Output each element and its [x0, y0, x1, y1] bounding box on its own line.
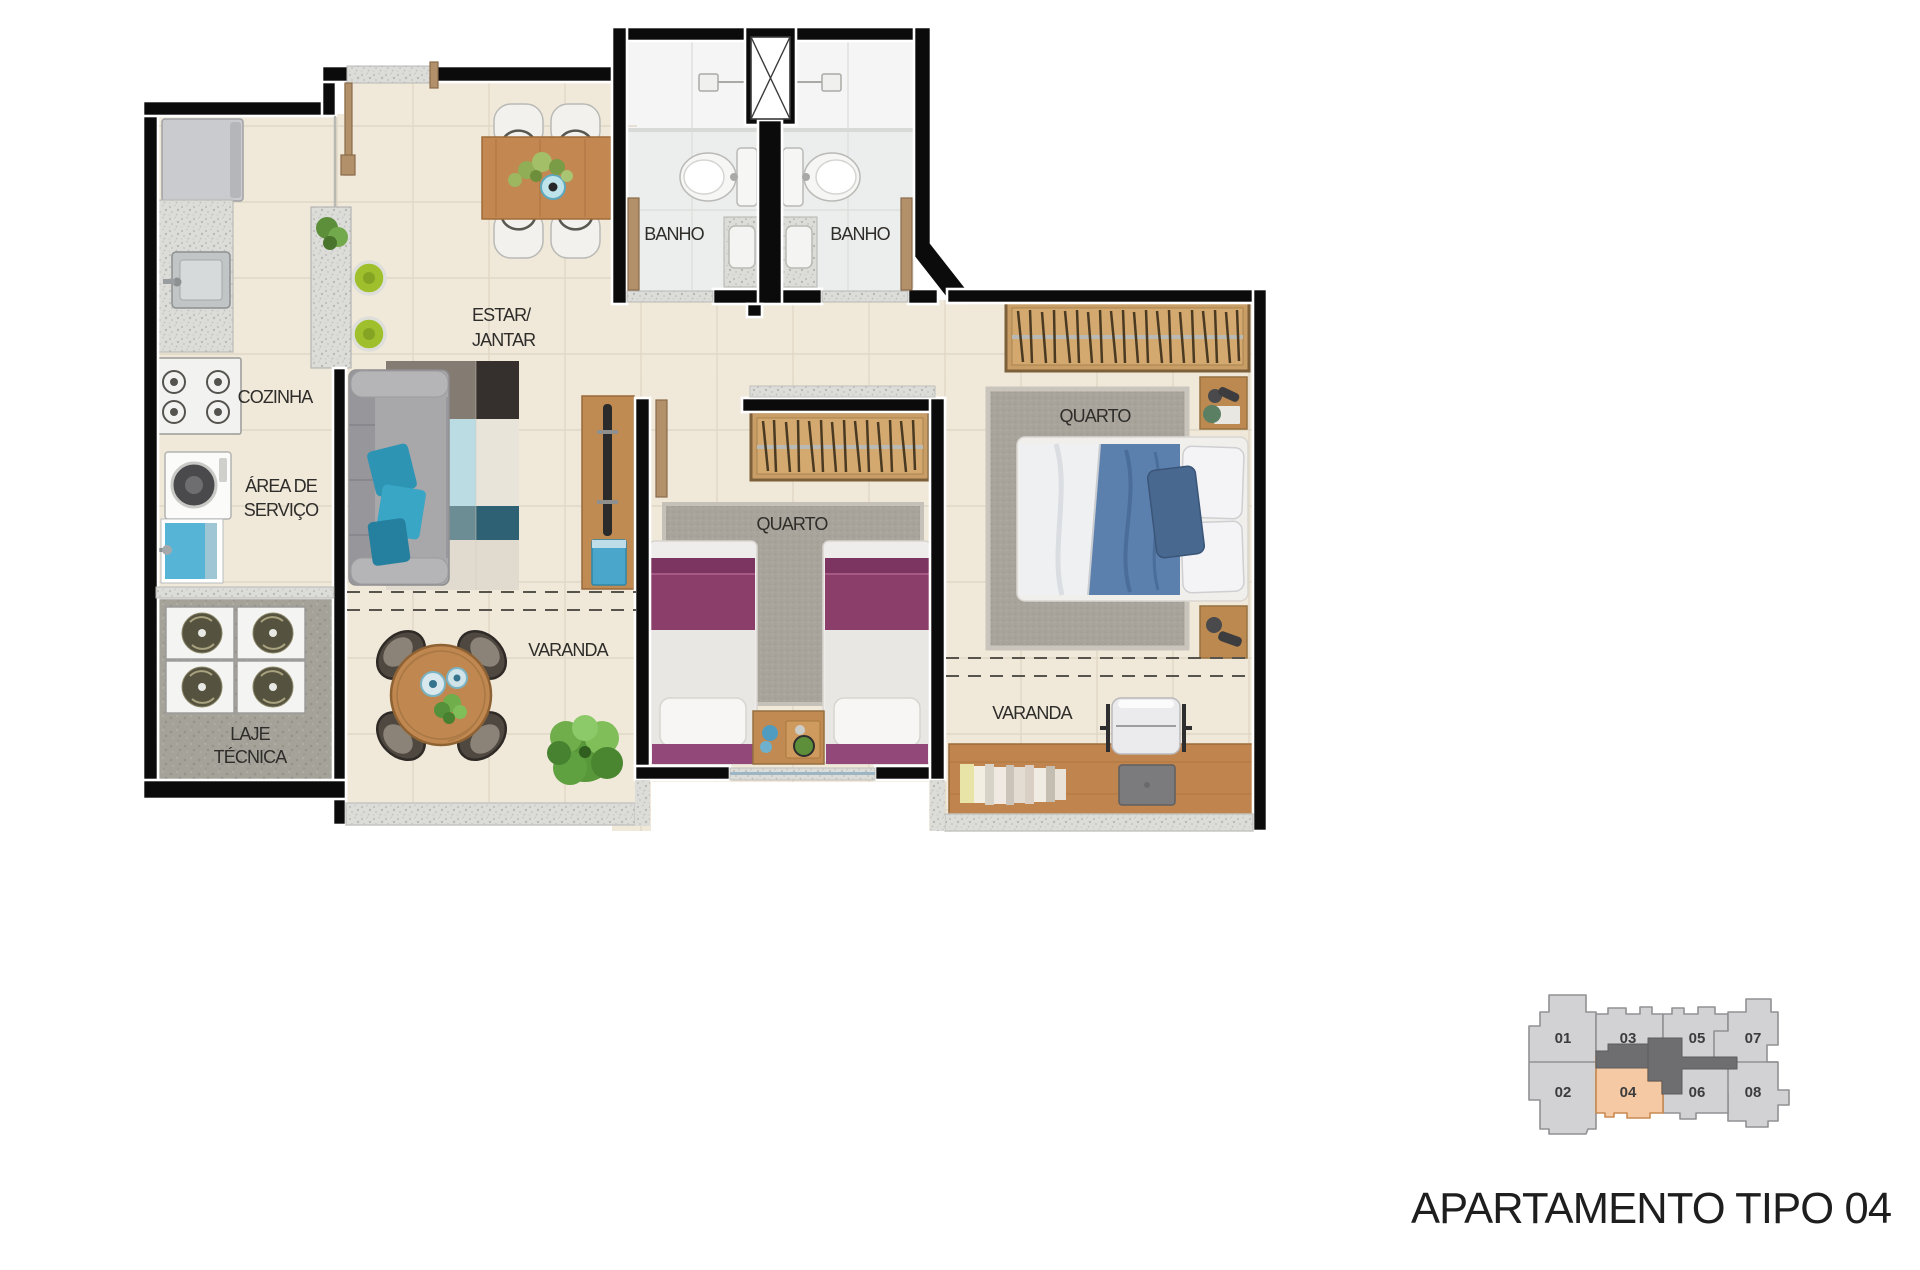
- svg-text:VARANDA: VARANDA: [528, 640, 608, 660]
- svg-text:JANTAR: JANTAR: [472, 330, 536, 350]
- svg-text:05: 05: [1689, 1030, 1706, 1047]
- svg-text:APARTAMENTO TIPO 04: APARTAMENTO TIPO 04: [1411, 1185, 1891, 1233]
- svg-text:ÁREA DE: ÁREA DE: [245, 476, 318, 496]
- svg-text:04: 04: [1620, 1084, 1637, 1101]
- svg-text:VARANDA: VARANDA: [992, 703, 1072, 723]
- svg-text:08: 08: [1745, 1084, 1762, 1101]
- svg-text:07: 07: [1745, 1030, 1762, 1047]
- svg-text:01: 01: [1555, 1030, 1572, 1047]
- svg-text:QUARTO: QUARTO: [757, 514, 829, 534]
- svg-text:ESTAR/: ESTAR/: [472, 305, 531, 325]
- svg-text:BANHO: BANHO: [644, 224, 704, 244]
- svg-text:02: 02: [1555, 1084, 1572, 1101]
- svg-text:QUARTO: QUARTO: [1060, 406, 1132, 426]
- svg-text:COZINHA: COZINHA: [238, 387, 314, 407]
- svg-text:BANHO: BANHO: [830, 224, 890, 244]
- svg-text:LAJE: LAJE: [230, 724, 270, 744]
- svg-text:03: 03: [1620, 1030, 1637, 1047]
- svg-text:TÉCNICA: TÉCNICA: [214, 747, 288, 767]
- svg-text:SERVIÇO: SERVIÇO: [244, 500, 319, 520]
- svg-text:06: 06: [1689, 1084, 1706, 1101]
